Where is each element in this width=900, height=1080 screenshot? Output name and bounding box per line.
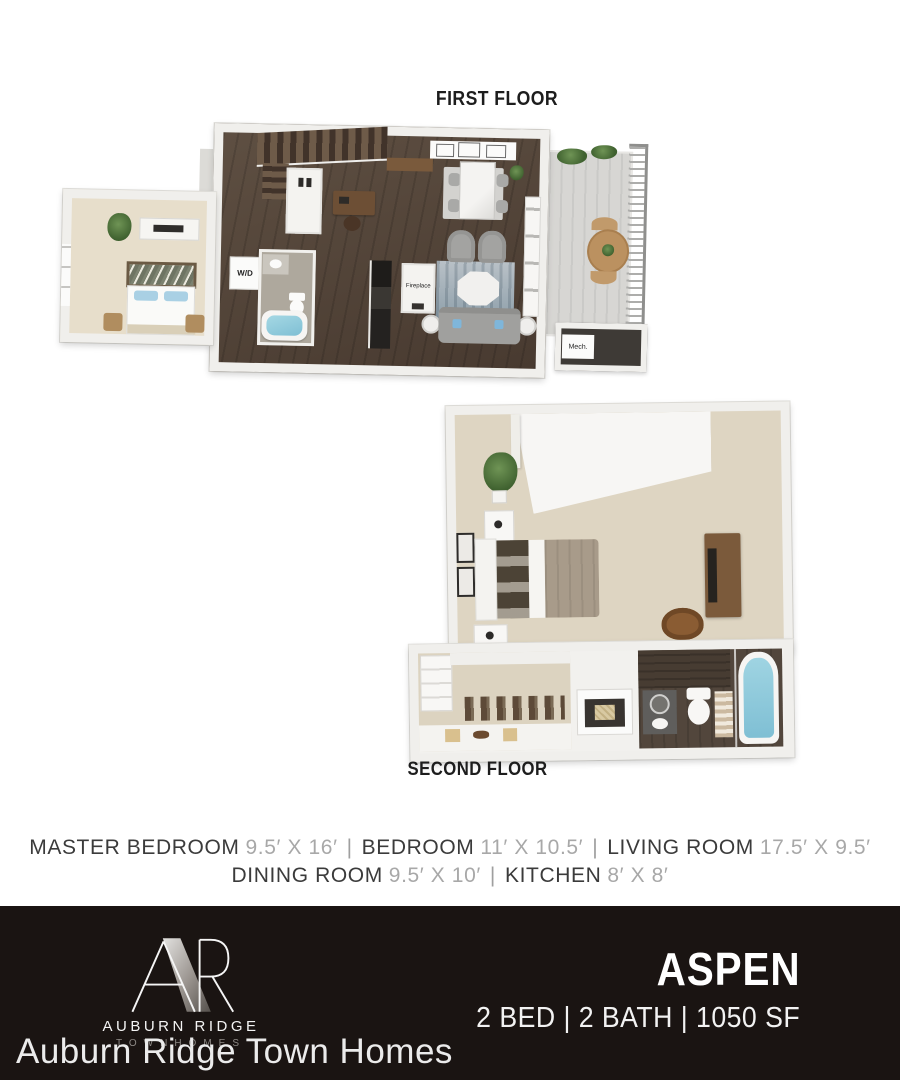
room-name: BEDROOM [362,836,475,859]
nightstand [103,313,122,331]
bathroom-vanity [262,254,288,275]
console-table [387,158,433,172]
room-size: 9.5′ X 16′ [246,836,338,859]
accent-chair [661,608,703,641]
dining-chair [496,174,508,187]
plan-specs: 2 BED | 2 BATH | 1050 SF [476,1002,800,1035]
wall-art-frame [457,567,475,597]
patio-window-wall [523,197,542,317]
desk-chair [343,216,360,231]
watermark-caption: Auburn Ridge Town Homes [16,1032,453,1072]
room-name: LIVING ROOM [607,836,754,859]
master-bed-headboard [474,538,497,620]
armchair [478,231,507,264]
kitchen-appliances [368,260,392,348]
closet-shelf [450,651,570,665]
storage-box [445,729,460,742]
stair-void-panel [515,411,712,514]
room-name: MASTER BEDROOM [29,836,239,859]
staircase [257,127,388,167]
master-bedroom [446,401,793,658]
master-bed-blanket [544,539,599,618]
tv-console [704,533,741,617]
first-floor-title: FIRST FLOOR [405,88,590,111]
storage-box [503,728,517,741]
towel-rack [715,691,734,737]
mechanical-closet-label: Mech. [562,334,594,359]
closet-floor [419,723,571,751]
room-dimensions-line-2: DINING ROOM9.5′ X 10′|KITCHEN8′ X 8′ [0,864,900,888]
bedroom-plant [107,213,132,241]
dining-table [459,161,496,220]
plant-pot [492,490,507,503]
separator: | [592,836,598,859]
master-bed-sheet [528,540,545,618]
room-size: 11′ X 10.5′ [480,836,583,859]
dresser [576,689,633,736]
room-size: 9.5′ X 10′ [389,864,481,887]
room-size: 8′ X 8′ [607,864,668,887]
second-floor-title: SECOND FLOOR [408,759,548,781]
closet-door [420,655,453,711]
bathtub [261,310,308,341]
master-bed-pillows [496,540,529,618]
master-plant [483,452,518,492]
room-name: KITCHEN [505,864,601,887]
second-floor-lower-strip [409,639,795,762]
toilet [688,698,710,724]
room-dimensions-line-1: MASTER BEDROOM9.5′ X 16′|BEDROOM11′ X 10… [0,836,900,860]
shoes [473,731,489,739]
first-floor-plan: Mech. [59,116,649,386]
stair-landing [262,163,289,200]
first-floor-bedroom [60,189,216,345]
vanity-mirror [650,694,670,714]
walk-in-closet [418,651,571,751]
bathroom-vanity [643,690,678,734]
bedroom-dresser [139,217,199,240]
sofa [438,307,521,345]
separator: | [490,864,496,887]
dining-plant [510,165,524,180]
first-floor-bathroom [257,249,316,346]
kitchen-cabinet-sketch [430,141,516,161]
mechanical-closet: Mech. [555,322,648,372]
under-stair-closet [285,168,322,235]
nightstand [185,314,204,332]
wall-art-frame [456,533,474,563]
basket [595,705,615,720]
accent-wall [638,649,731,688]
second-floor-bathroom [638,648,783,748]
plan-name: ASPEN [656,942,800,996]
washer-dryer-closet: W/D [229,256,261,290]
desk [333,191,375,216]
sink [652,718,668,729]
bathtub [738,652,779,745]
patio-railing [625,144,648,345]
shower-glass [734,649,737,747]
auburn-ridge-monogram [126,934,238,1016]
room-size: 17.5′ X 9.5′ [760,836,871,859]
patio-chair [590,271,616,285]
first-floor-main-block: Fireplace W/D [209,123,549,378]
fireplace-label: Fireplace [401,281,435,292]
armchair [447,230,476,263]
bedroom-window [61,244,71,306]
hanging-clothes [465,696,565,721]
second-floor-plan [406,401,795,762]
dining-chair [496,200,508,213]
patio: Mech. [543,142,650,372]
separator: | [347,836,353,859]
floor-plan-sheet: FIRST FLOOR Mech. [0,0,900,1080]
room-name: DINING ROOM [232,864,383,887]
fireplace: Fireplace [401,263,436,314]
